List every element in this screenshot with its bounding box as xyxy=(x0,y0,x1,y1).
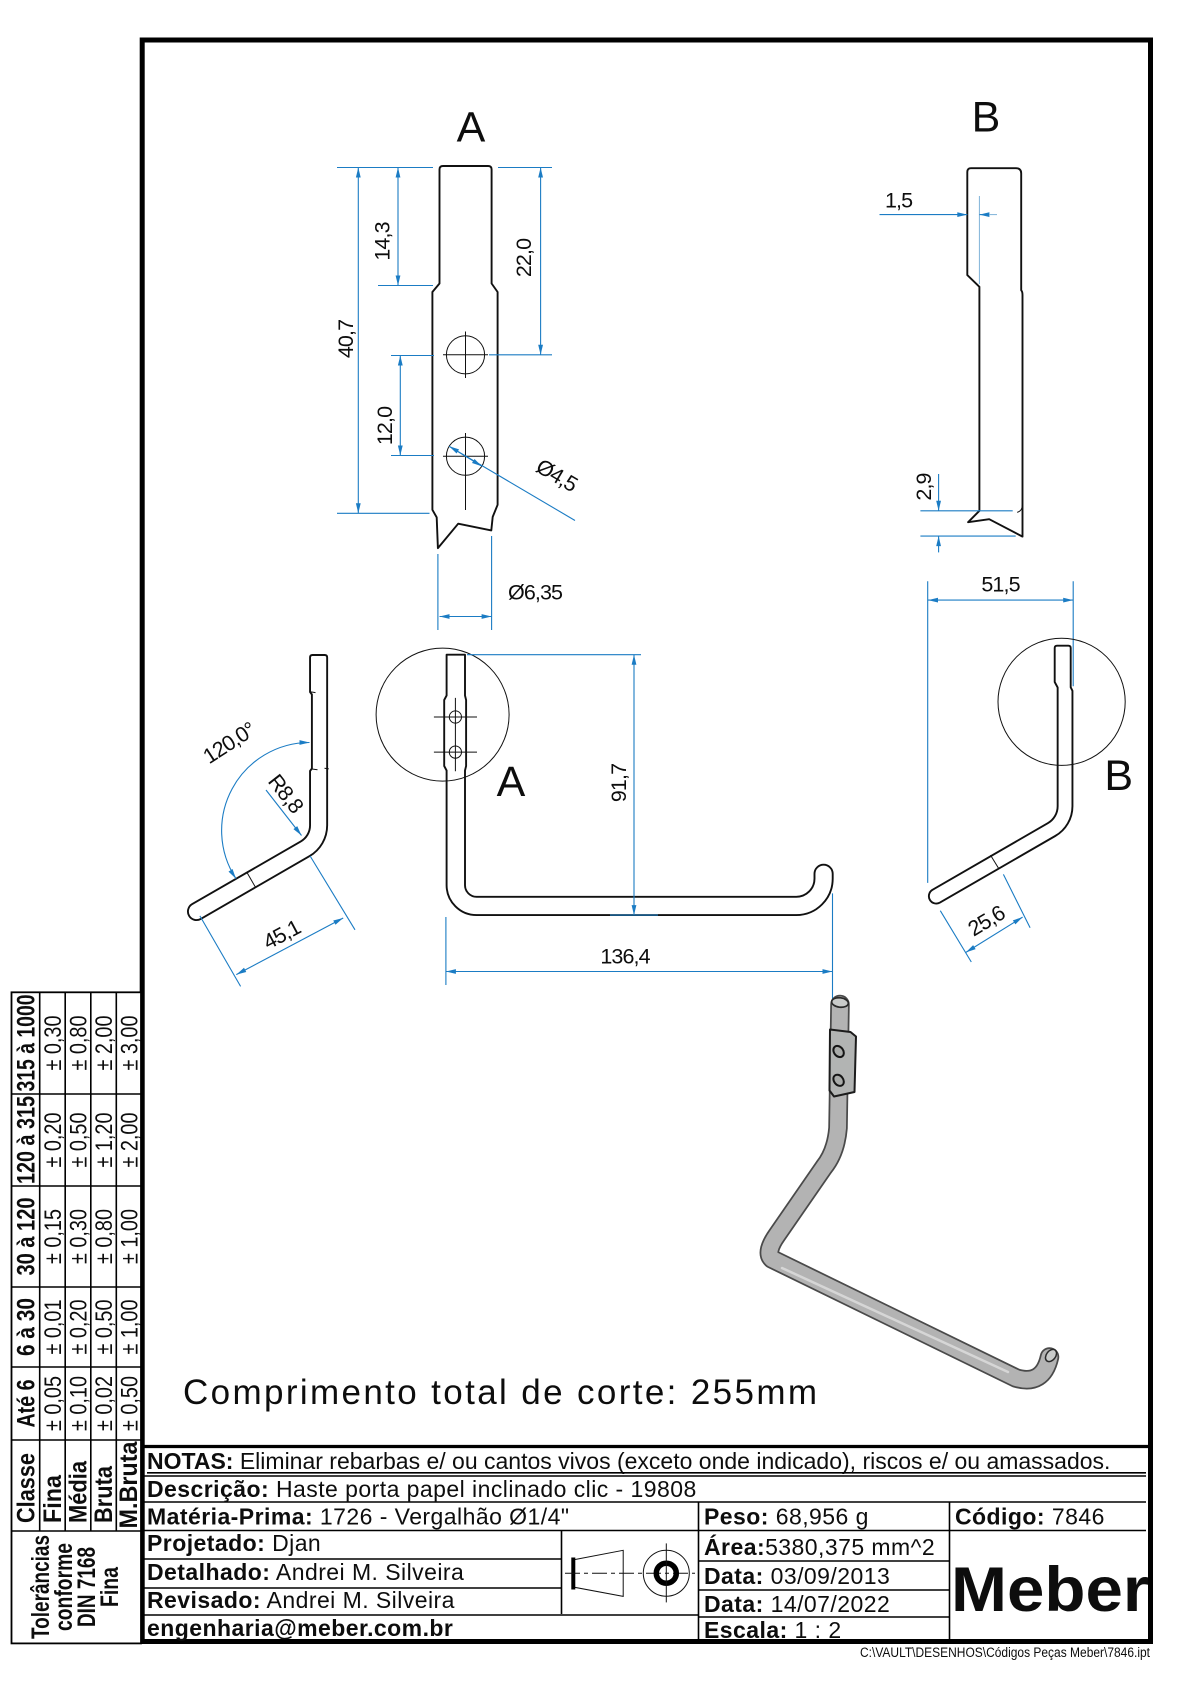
svg-text:± 0,10: ± 0,10 xyxy=(66,1376,93,1431)
svg-text:± 0,01: ± 0,01 xyxy=(40,1300,67,1355)
svg-text:Revisado: Andrei M. Silveira: Revisado: Andrei M. Silveira xyxy=(147,1587,455,1613)
svg-text:Projetado: Djan: Projetado: Djan xyxy=(147,1530,321,1556)
svg-text:± 0,30: ± 0,30 xyxy=(66,1209,93,1264)
svg-text:22,0: 22,0 xyxy=(512,238,536,277)
svg-text:136,4: 136,4 xyxy=(600,945,650,969)
svg-text:± 0,50: ± 0,50 xyxy=(66,1113,93,1168)
svg-text:Escala: 1 : 2: Escala: 1 : 2 xyxy=(704,1617,842,1643)
svg-text:± 0,50: ± 0,50 xyxy=(117,1376,144,1431)
svg-text:engenharia@meber.com.br: engenharia@meber.com.br xyxy=(147,1615,453,1641)
svg-text:± 0,02: ± 0,02 xyxy=(91,1376,118,1431)
svg-text:± 0,15: ± 0,15 xyxy=(40,1209,67,1264)
svg-text:Ø6,35: Ø6,35 xyxy=(508,581,563,605)
svg-text:Data: 03/09/2013: Data: 03/09/2013 xyxy=(704,1563,890,1589)
svg-text:± 0,50: ± 0,50 xyxy=(91,1300,118,1355)
svg-text:Matéria-Prima: 1726 - Vergalhã: Matéria-Prima: 1726 - Vergalhão Ø1/4" xyxy=(147,1504,569,1530)
svg-text:Código: 7846: Código: 7846 xyxy=(955,1504,1105,1530)
svg-text:40,7: 40,7 xyxy=(334,320,358,358)
svg-text:Até 6: Até 6 xyxy=(13,1380,41,1428)
svg-text:± 2,00: ± 2,00 xyxy=(91,1016,118,1071)
svg-text:Média: Média xyxy=(65,1460,93,1523)
svg-text:Bruta: Bruta xyxy=(90,1465,118,1523)
svg-text:± 1,00: ± 1,00 xyxy=(117,1300,144,1355)
svg-text:± 0,20: ± 0,20 xyxy=(66,1300,93,1355)
svg-text:14,3: 14,3 xyxy=(371,221,395,260)
svg-text:± 2,00: ± 2,00 xyxy=(117,1113,144,1168)
svg-text:± 0,80: ± 0,80 xyxy=(91,1209,118,1264)
svg-text:Classe: Classe xyxy=(13,1453,41,1523)
svg-text:12,0: 12,0 xyxy=(373,406,397,445)
svg-text:Fina: Fina xyxy=(96,1566,124,1607)
svg-text:2,9: 2,9 xyxy=(912,473,936,500)
svg-text:Meber: Meber xyxy=(951,1555,1149,1625)
svg-text:315 à 1000: 315 à 1000 xyxy=(13,995,41,1092)
svg-text:B: B xyxy=(972,94,1001,142)
svg-text:± 0,80: ± 0,80 xyxy=(66,1016,93,1071)
svg-text:± 0,30: ± 0,30 xyxy=(40,1016,67,1071)
svg-text:Área:5380,375 mm^2: Área:5380,375 mm^2 xyxy=(704,1533,935,1560)
svg-text:Peso: 68,956 g: Peso: 68,956 g xyxy=(704,1504,869,1530)
svg-text:A: A xyxy=(457,104,486,152)
svg-text:91,7: 91,7 xyxy=(607,764,631,802)
svg-text:± 0,05: ± 0,05 xyxy=(40,1376,67,1431)
svg-text:30 à 120: 30 à 120 xyxy=(13,1198,41,1276)
svg-text:Comprimento total de corte: 25: Comprimento total de corte: 255mm xyxy=(183,1373,817,1412)
svg-text:Detalhado: Andrei M. Silveira: Detalhado: Andrei M. Silveira xyxy=(147,1559,464,1585)
svg-text:± 1,20: ± 1,20 xyxy=(91,1113,118,1168)
svg-text:51,5: 51,5 xyxy=(981,573,1020,597)
svg-text:± 0,20: ± 0,20 xyxy=(40,1113,67,1168)
svg-text:± 3,00: ± 3,00 xyxy=(117,1016,144,1071)
svg-text:Data: 14/07/2022: Data: 14/07/2022 xyxy=(704,1591,890,1617)
svg-text:C:\VAULT\DESENHOS\Códigos Peça: C:\VAULT\DESENHOS\Códigos Peças Meber\78… xyxy=(860,1645,1150,1660)
svg-text:120 à 315: 120 à 315 xyxy=(13,1096,41,1184)
svg-text:± 1,00: ± 1,00 xyxy=(117,1209,144,1264)
svg-text:M.Bruta: M.Bruta xyxy=(115,1440,143,1528)
svg-text:Fina: Fina xyxy=(39,1474,67,1523)
svg-text:1,5: 1,5 xyxy=(885,189,913,213)
svg-text:A: A xyxy=(497,758,526,806)
svg-text:B: B xyxy=(1104,752,1133,800)
svg-text:NOTAS: Eliminar rebarbas e/ ou: NOTAS: Eliminar rebarbas e/ ou cantos vi… xyxy=(147,1448,1110,1474)
svg-text:Descrição: Haste porta papel i: Descrição: Haste porta papel inclinado c… xyxy=(147,1476,697,1502)
svg-text:6 à 30: 6 à 30 xyxy=(13,1298,41,1356)
